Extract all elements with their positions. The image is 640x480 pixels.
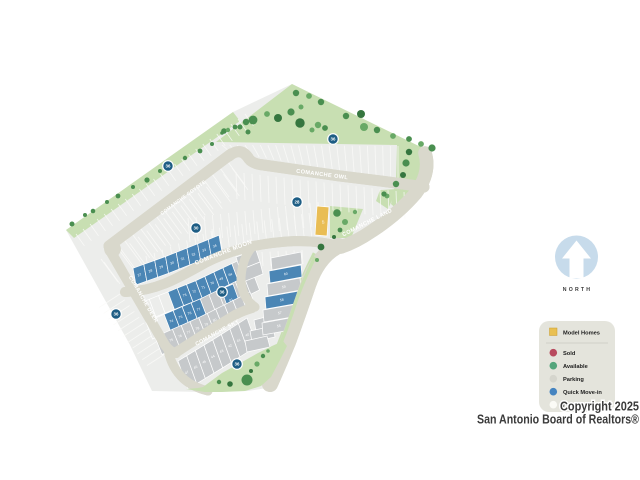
svg-text:Available: Available [563, 364, 588, 370]
svg-text:43: 43 [321, 220, 325, 224]
svg-text:Quick Move-in: Quick Move-in [563, 390, 602, 396]
svg-text:Model Homes: Model Homes [563, 330, 600, 336]
svg-text:NORTH: NORTH [563, 287, 592, 293]
svg-text:36: 36 [114, 312, 119, 317]
svg-text:Sold: Sold [563, 351, 576, 357]
svg-text:36: 36 [331, 137, 336, 142]
svg-text:Parking: Parking [563, 377, 584, 383]
svg-text:36: 36 [166, 164, 171, 169]
svg-text:Copyright 2025: Copyright 2025 [560, 400, 639, 414]
svg-text:28: 28 [295, 200, 300, 205]
svg-text:San Antonio Board of Realtors®: San Antonio Board of Realtors® [477, 413, 640, 427]
svg-text:30: 30 [194, 226, 199, 231]
svg-text:36: 36 [220, 290, 225, 295]
svg-text:36: 36 [235, 362, 240, 367]
